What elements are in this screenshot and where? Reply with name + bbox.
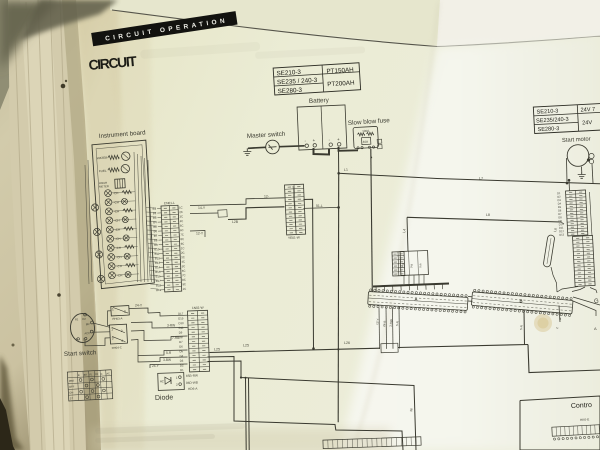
svg-text:24-Y: 24-Y (135, 304, 143, 308)
svg-text:B3: B3 (153, 216, 157, 220)
svg-text:-CH: -CH (115, 228, 121, 232)
svg-text:7-RB: 7-RB (172, 336, 179, 340)
svg-text:3C: 3C (179, 214, 183, 218)
svg-text:6C: 6C (180, 228, 184, 232)
svg-text:B8: B8 (154, 238, 158, 242)
svg-text:L1: L1 (344, 168, 348, 172)
svg-text:5-R: 5-R (166, 351, 172, 355)
svg-text:L26: L26 (344, 341, 350, 345)
svg-text:D13: D13 (178, 321, 184, 325)
svg-text:A: A (594, 326, 597, 331)
svg-text:HD6-A: HD6-A (188, 387, 199, 391)
svg-text:4C: 4C (180, 219, 184, 223)
svg-text:C: C (83, 337, 85, 341)
svg-text:D1: D1 (180, 368, 184, 372)
svg-text:3-B: 3-B (409, 263, 414, 268)
svg-text:-CH: -CH (116, 255, 122, 259)
svg-text:-CH: -CH (113, 191, 119, 195)
svg-text:2C: 2C (181, 251, 185, 255)
svg-text:ACC: ACC (84, 331, 90, 335)
svg-text:3-RW: 3-RW (167, 324, 175, 328)
svg-text:-CH: -CH (116, 246, 122, 250)
svg-text:1: 1 (112, 307, 114, 311)
svg-text:SE210-3: SE210-3 (536, 108, 558, 115)
svg-text:-CH: -CH (117, 264, 123, 268)
svg-text:5C: 5C (180, 224, 184, 228)
svg-text:3C: 3C (181, 255, 185, 259)
svg-text:86D-WB: 86D-WB (186, 381, 198, 385)
svg-text:D7: D7 (179, 340, 183, 344)
svg-text:40A: 40A (363, 140, 369, 144)
svg-text:9C: 9C (181, 242, 185, 246)
svg-text:12-Y: 12-Y (196, 232, 204, 236)
svg-text:CN01-L: CN01-L (164, 201, 175, 205)
svg-text:8C: 8C (180, 237, 184, 241)
svg-text:1N01-W: 1N01-W (192, 306, 204, 310)
svg-text:PRE: PRE (69, 379, 75, 383)
svg-text:AC: AC (106, 372, 110, 375)
svg-text:4C: 4C (181, 260, 185, 264)
svg-text:D8: D8 (179, 335, 183, 339)
svg-text:-CH: -CH (114, 209, 120, 213)
svg-text:A: A (414, 297, 417, 302)
svg-text:Diode: Diode (155, 394, 174, 402)
svg-text:FUEL: FUEL (99, 169, 107, 173)
svg-text:-CH: -CH (113, 200, 119, 204)
svg-text:L25: L25 (243, 343, 249, 347)
svg-text:-CH: -CH (115, 237, 121, 241)
svg-text:24V 7: 24V 7 (580, 107, 595, 114)
svg-text:D9: D9 (179, 330, 183, 334)
svg-text:9C: 9C (182, 282, 186, 286)
svg-text:24-Y: 24-Y (152, 364, 160, 368)
svg-text:WATER: WATER (97, 156, 109, 161)
svg-text:L7: L7 (479, 177, 483, 181)
svg-text:51-L: 51-L (316, 204, 323, 208)
svg-text:1C: 1C (181, 246, 185, 250)
svg-text:OFF: OFF (69, 385, 75, 389)
svg-text:HK6-E: HK6-E (580, 418, 590, 422)
svg-text:-CH: -CH (114, 218, 120, 222)
svg-text:G: G (594, 299, 599, 305)
svg-text:3-BW: 3-BW (163, 358, 171, 362)
svg-text:14-Y: 14-Y (198, 206, 206, 210)
svg-text:1C: 1C (183, 287, 187, 291)
svg-text:ST: ST (70, 396, 74, 400)
svg-text:L2B: L2B (232, 220, 239, 224)
svg-text:D15: D15 (178, 316, 184, 320)
svg-text:D6: D6 (179, 345, 183, 349)
svg-text:BR: BR (86, 322, 90, 326)
svg-text:BR: BR (84, 374, 88, 377)
svg-text:24V: 24V (582, 120, 593, 127)
svg-text:D3: D3 (180, 359, 184, 363)
svg-text:YE01-W: YE01-W (288, 235, 300, 240)
svg-text:24-B: 24-B (400, 262, 405, 268)
svg-text:L25: L25 (214, 348, 220, 352)
svg-text:L4: L4 (402, 229, 407, 234)
svg-text:2: 2 (124, 310, 126, 314)
svg-text:L8: L8 (486, 213, 490, 217)
svg-text:SE280-3: SE280-3 (537, 126, 559, 133)
svg-text:-CH: -CH (117, 273, 123, 277)
svg-text:A2: A2 (160, 379, 164, 383)
svg-text:ON: ON (69, 390, 73, 394)
svg-text:7C: 7C (180, 233, 184, 237)
svg-text:12-: 12- (264, 195, 269, 199)
svg-text:B: B (519, 299, 522, 304)
svg-text:RH03-A: RH03-A (112, 316, 122, 321)
svg-text:Battery: Battery (309, 97, 330, 105)
svg-text:RH04-C: RH04-C (112, 345, 122, 350)
svg-text:65B-RW: 65B-RW (186, 374, 198, 378)
svg-text:5-R: 5-R (418, 263, 423, 268)
svg-text:Contro: Contro (571, 402, 592, 410)
svg-text:D13: D13 (559, 232, 565, 236)
svg-text:METER: METER (99, 184, 109, 189)
